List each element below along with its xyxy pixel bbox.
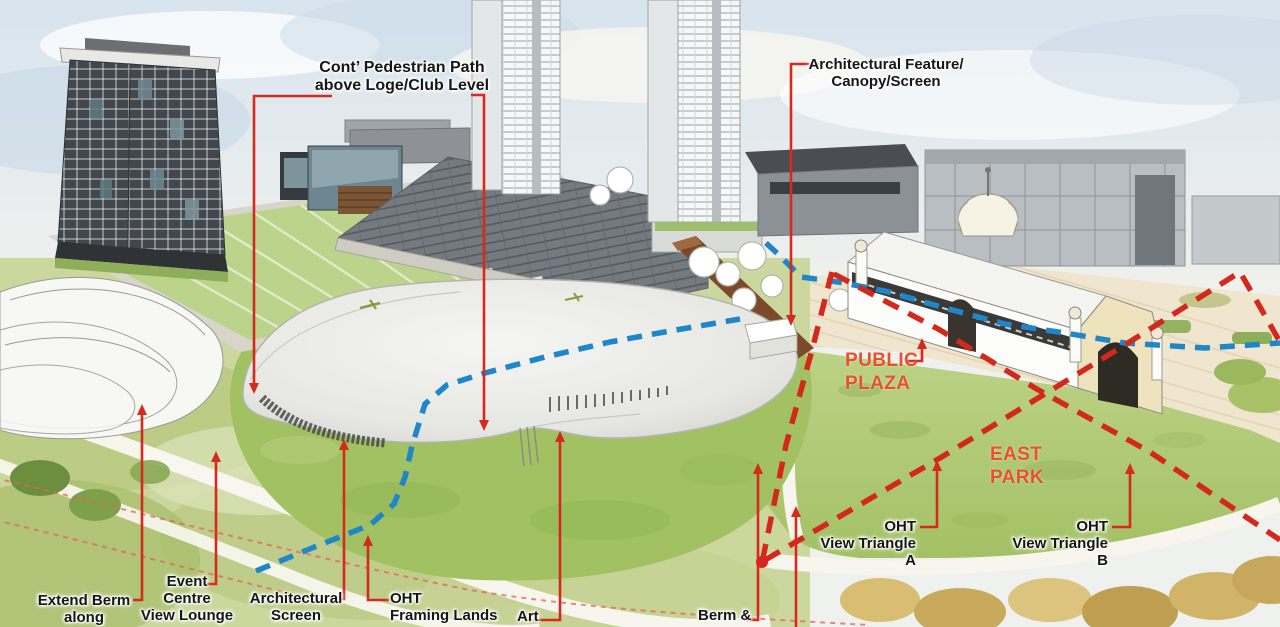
label-oht-view-triangle-b: OHT View Triangle B: [1005, 518, 1108, 569]
label-art: Art: [517, 608, 539, 625]
label-berm: Berm &: [698, 607, 751, 624]
label-extend-berm: Extend Berm along: [38, 592, 131, 626]
label-oht-framing-lands: OHT Framing Lands: [390, 590, 498, 624]
residential-tower: [55, 38, 228, 282]
label-pedestrian-path: Cont’ Pedestrian Path above Loge/Club Le…: [315, 59, 489, 95]
label-public-plaza: PUBLIC PLAZA: [845, 350, 918, 396]
site-plan-rendering: Cont’ Pedestrian Path above Loge/Club Le…: [0, 0, 1280, 627]
label-architectural-feature: Architectural Feature/ Canopy/Screen: [808, 56, 963, 90]
label-architectural-screen: Architectural Screen: [250, 590, 343, 624]
label-east-park: EAST PARK: [990, 444, 1044, 490]
label-oht-view-triangle-a: OHT View Triangle A: [813, 518, 916, 569]
label-event-centre-view-lounge: Event Centre View Lounge: [141, 573, 233, 624]
